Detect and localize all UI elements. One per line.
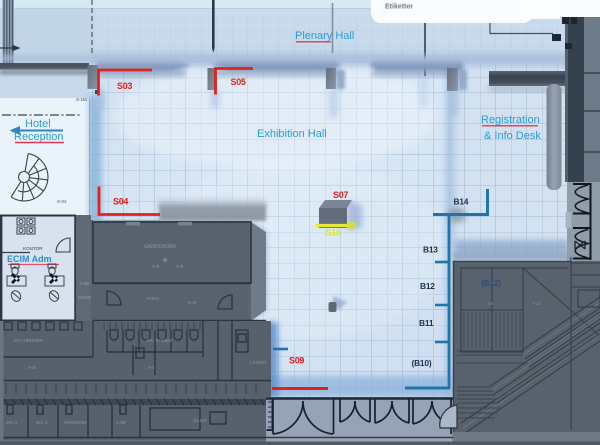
svg-text:ECIM Adm: ECIM Adm [7, 254, 52, 264]
svg-text:S16: S16 [326, 228, 341, 238]
svg-text:Plenary Hall: Plenary Hall [295, 30, 354, 42]
svg-text:B13: B13 [423, 245, 438, 255]
svg-text:WC 3: WC 3 [6, 420, 18, 425]
svg-text:S07: S07 [333, 190, 348, 200]
svg-text:(B12): (B12) [481, 278, 501, 288]
svg-text:Hotel: Hotel [25, 118, 51, 130]
svg-text:H-8: H-8 [176, 264, 184, 269]
svg-text:1-6: 1-6 [487, 301, 494, 306]
svg-text:WC HERRER: WC HERRER [14, 338, 44, 344]
svg-text:GARDEROBA: GARDEROBA [144, 244, 177, 250]
svg-text:1-HE: 1-HE [79, 281, 89, 286]
svg-text:S-1M: S-1M [76, 97, 87, 102]
svg-text:7-12: 7-12 [532, 301, 542, 306]
svg-text:S09: S09 [289, 356, 304, 366]
svg-text:S04: S04 [113, 197, 128, 207]
svg-text:Etiketter: Etiketter [385, 4, 413, 11]
svg-text:LAGER: LAGER [250, 360, 267, 366]
svg-text:H-N: H-N [188, 300, 196, 305]
svg-text:WC 4: WC 4 [36, 420, 48, 425]
svg-text:GODS: GODS [146, 296, 159, 301]
svg-text:B12: B12 [420, 281, 435, 291]
svg-text:H-B: H-B [28, 365, 36, 370]
svg-text:A-08: A-08 [116, 420, 126, 425]
svg-text:B14: B14 [454, 197, 469, 207]
svg-text:(B10): (B10) [412, 358, 432, 368]
svg-text:Reception: Reception [14, 131, 64, 143]
svg-text:B11: B11 [419, 318, 434, 328]
svg-text:KONTOR: KONTOR [23, 246, 43, 251]
svg-text:S-02: S-02 [57, 199, 67, 204]
svg-text:VARDROM: VARDROM [64, 420, 87, 425]
svg-text:H-6: H-6 [152, 264, 160, 269]
svg-text:S03: S03 [117, 81, 132, 91]
svg-text:WC DAMER: WC DAMER [146, 338, 173, 344]
svg-text:Exhibition Hall: Exhibition Hall [257, 128, 327, 140]
svg-text:KLER: KLER [194, 418, 207, 424]
svg-text:S05: S05 [231, 77, 246, 87]
svg-text:& Info Desk: & Info Desk [484, 130, 541, 142]
svg-text:Registration: Registration [481, 114, 540, 126]
svg-text:GANG: GANG [78, 295, 92, 300]
